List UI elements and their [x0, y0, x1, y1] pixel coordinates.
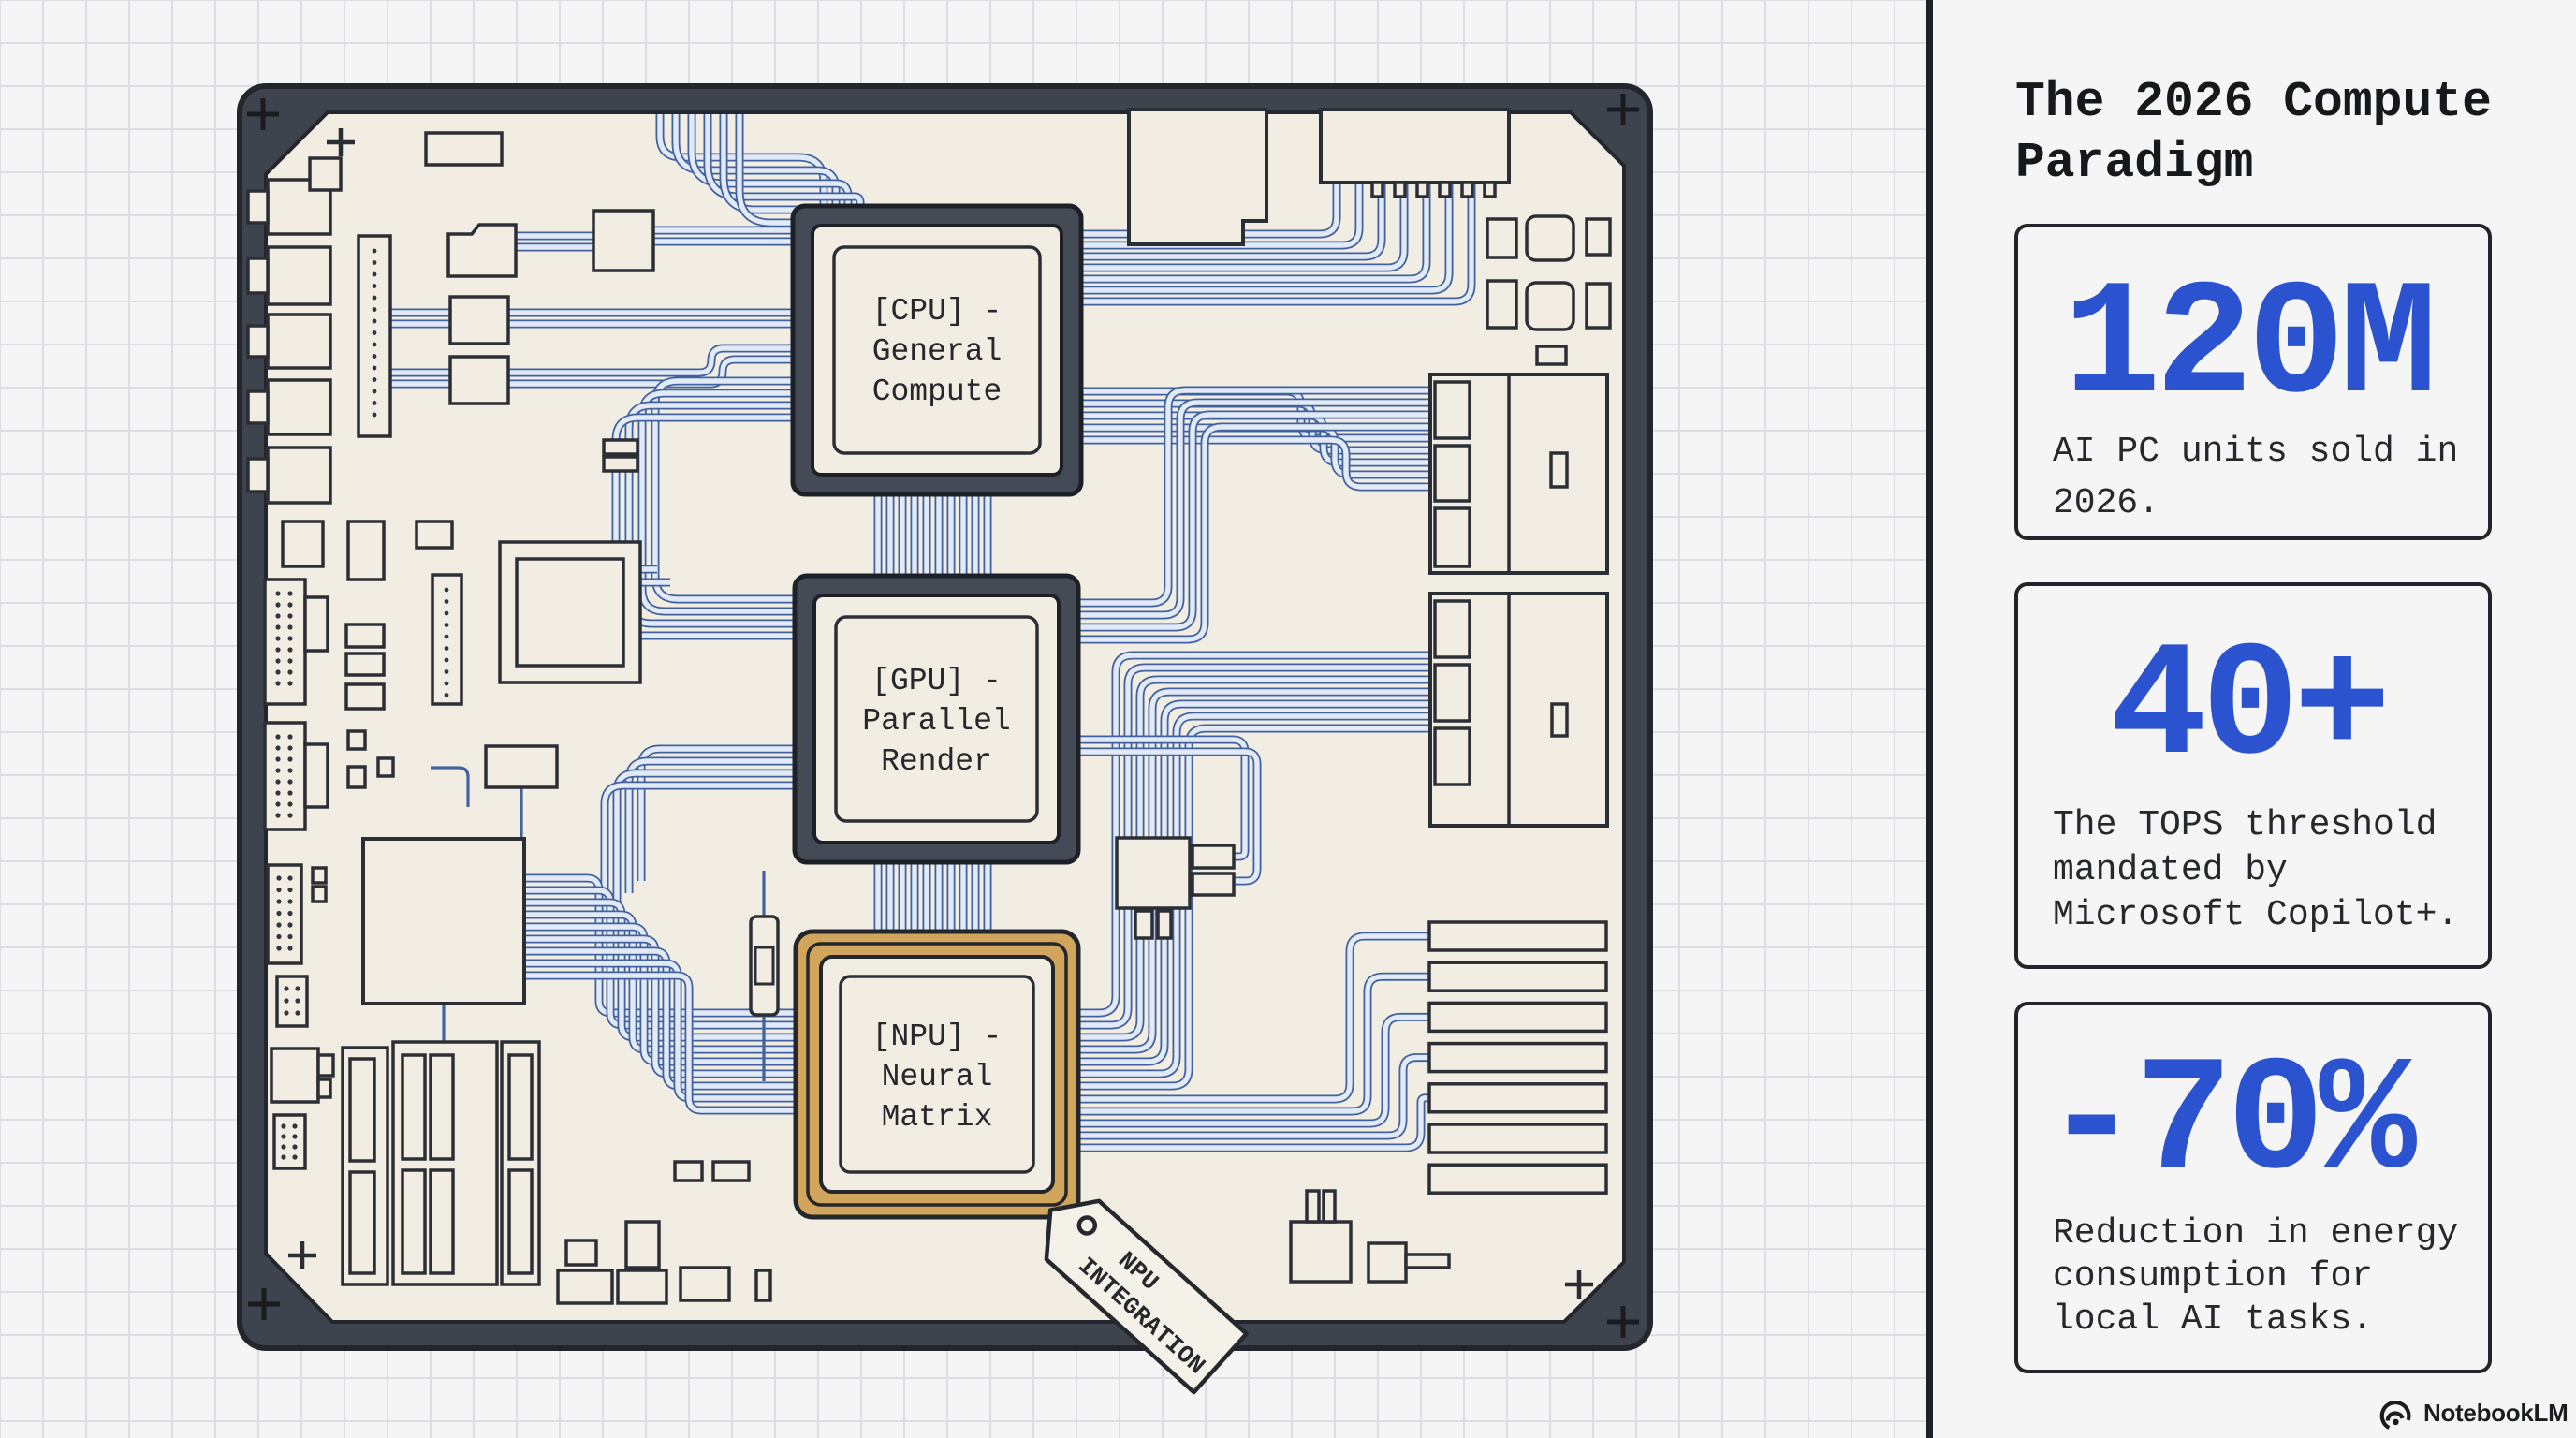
svg-text:Neural: Neural: [882, 1060, 993, 1094]
svg-text:[NPU] -: [NPU] -: [872, 1020, 1003, 1054]
svg-text:[CPU] -: [CPU] -: [872, 294, 1003, 329]
svg-text:Render: Render: [881, 744, 992, 779]
svg-text:Parallel: Parallel: [862, 704, 1010, 739]
svg-text:Compute: Compute: [872, 374, 1003, 409]
svg-text:Matrix: Matrix: [882, 1100, 993, 1135]
svg-text:[GPU] -: [GPU] -: [871, 664, 1002, 698]
svg-text:General: General: [872, 334, 1003, 369]
